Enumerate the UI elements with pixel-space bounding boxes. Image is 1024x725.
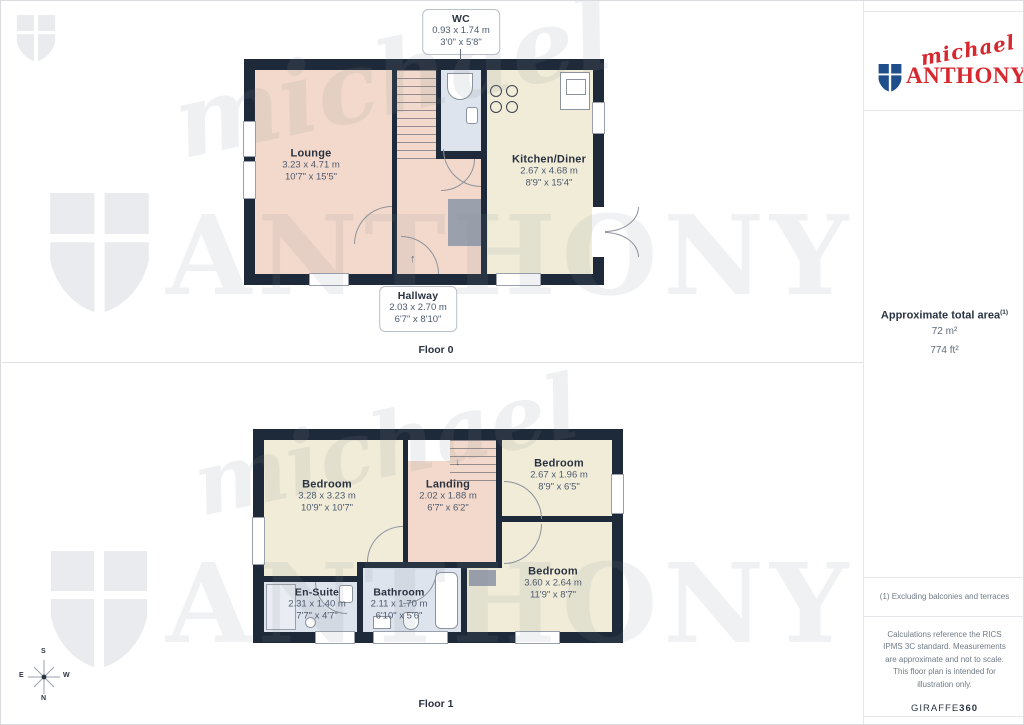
window [373,631,448,644]
compass-e: E [19,672,24,679]
window [592,102,605,134]
floorplan-area: michael ANTHONY michael ANTHONY [1,1,863,725]
window [515,631,560,644]
toilet-icon [466,107,478,124]
sink-icon [373,616,391,629]
disclaimer-text: Calculations reference the RICS IPMS 3C … [878,629,1011,691]
footnote-marker: (1) [1000,309,1008,316]
floorplan-page: michael ANTHONY michael ANTHONY [0,0,1024,725]
toilet-icon [403,612,419,630]
window [243,161,256,199]
footnote-box: (1) Excluding balconies and terraces [864,577,1024,617]
agency-logo: michael ANTHONY [864,11,1024,111]
cupboard [469,570,496,586]
room-bedroom1 [264,562,357,576]
total-area-title: Approximate total area(1) [864,309,1024,322]
window [243,121,256,157]
giraffe360-brand: GIRAFFE360 [878,703,1011,714]
floor0-caption: Floor 0 [61,344,811,356]
room-dims-imperial: 6'7" x 8'10" [389,314,447,326]
callout-hallway: Hallway 2.03 x 2.70 m 6'7" x 8'10" [379,286,457,332]
total-area-ft2: 774 ft² [864,341,1024,360]
room-dims-imperial: 3'0" x 5'8" [432,37,490,49]
footnote-text: (1) Excluding balconies and terraces [880,591,1009,603]
door-opening [592,207,605,257]
compass-n: N [41,695,46,702]
shield-watermark-icon [48,193,151,314]
room-name: Hallway [389,290,447,302]
compass-icon: S N E W [21,649,67,703]
room-dims-metric: 0.93 x 1.74 m [432,25,490,37]
shield-watermark-icon [16,15,56,62]
understairs-cupboard [448,199,481,246]
window [252,517,265,565]
disclaimer-box: Calculations reference the RICS IPMS 3C … [864,615,1024,717]
sink-icon [447,73,473,100]
room-dims-metric: 2.03 x 2.70 m [389,302,447,314]
bathtub-icon [435,572,458,629]
callout-connector [460,49,461,60]
window [496,273,541,286]
total-area-m2: 72 m² [864,322,1024,341]
window [309,273,349,286]
logo-name-text: ANTHONY [906,64,1024,87]
window [315,631,355,644]
total-area-block: Approximate total area(1) 72 m² 774 ft² [864,309,1024,360]
room-name: WC [432,13,490,25]
window [611,474,624,514]
kitchen-sink-icon [560,72,590,110]
hob-icon [490,85,524,119]
compass-s: S [41,648,46,655]
sink-icon [305,617,316,628]
floor1-plan: ↓ [253,429,623,643]
stairs [397,70,436,159]
stairwell-void [408,440,450,461]
logo-shield-icon [878,64,902,92]
floors-divider [2,362,863,363]
shower-icon [266,584,296,630]
info-sidebar: michael ANTHONY Approximate total area(1… [863,1,1024,725]
floor0-plan: ↑ [244,59,604,285]
door-arc [605,207,639,232]
entrance-arrow-icon: ↑ [410,253,416,265]
floor1-caption: Floor 1 [61,698,811,710]
callout-wc: WC 0.93 x 1.74 m 3'0" x 5'8" [422,9,500,55]
stairs-arrow-icon: ↓ [455,457,460,468]
compass-w: W [63,672,70,679]
toilet-icon [339,585,353,603]
door-arc [605,232,639,257]
